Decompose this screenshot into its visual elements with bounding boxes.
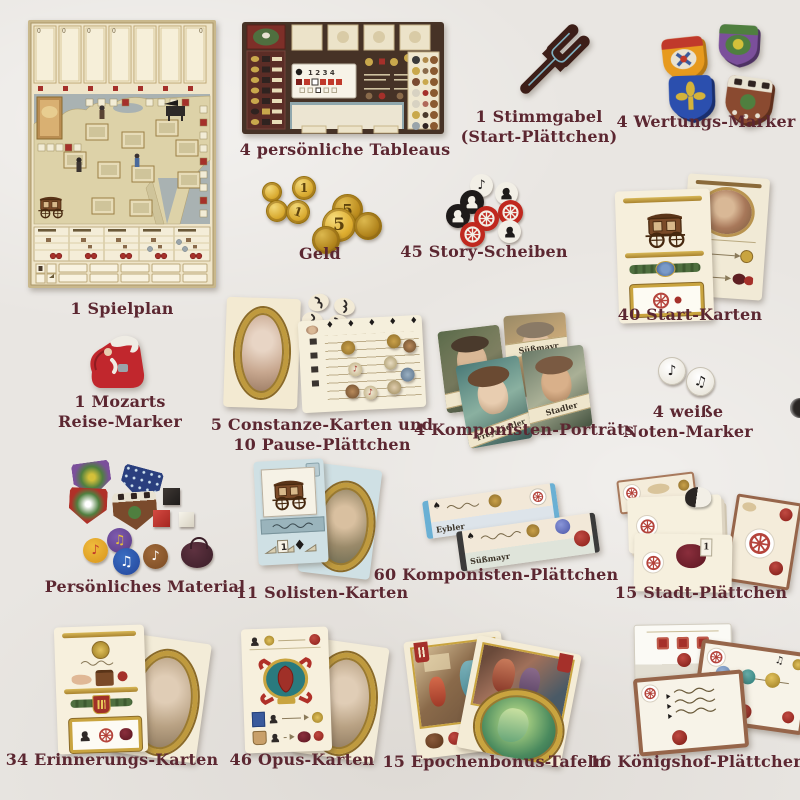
- komponisten-plaettchen-group: ♠ Eybler ♠ Süßmayr: [420, 480, 610, 575]
- svg-text:0: 0: [62, 28, 66, 35]
- komponisten-portraets-group: Eybler Süßmayr Freystädtler Stadler: [436, 310, 596, 420]
- stadt-tile-tall: [724, 493, 800, 590]
- wax-seal-icon: [677, 653, 691, 667]
- solisten-label: 11 Solisten-Karten: [236, 583, 409, 603]
- gold-bar: [64, 687, 138, 695]
- carriage-icon: [639, 205, 690, 249]
- stimmgabel-tuning-fork: [492, 10, 612, 115]
- material-label: Persönliches Material: [45, 577, 246, 597]
- bird-icon: [262, 33, 270, 39]
- tableau-graphic: 1 2 3 4: [242, 22, 444, 134]
- profile-icon: [79, 729, 92, 742]
- note-marker: ♫: [683, 364, 718, 399]
- opus-label: 46 Opus-Karten: [230, 750, 375, 770]
- personal-tableau: 1 2 3 4: [242, 22, 444, 134]
- blue-figure-icon: [135, 154, 140, 167]
- figure-token-icon: [685, 487, 712, 508]
- coin-icon: [526, 523, 541, 538]
- traveler-icon: [99, 105, 104, 119]
- note-disc-yellow: ♪: [83, 538, 108, 563]
- red-gem-icon: [779, 507, 794, 522]
- red-gem-icon: [573, 529, 591, 547]
- tableau-score-card: 1 2 3 4: [292, 64, 356, 98]
- player-shield-red: [68, 487, 108, 525]
- purse-icon: [181, 542, 213, 568]
- erinnerungs-card-front: [54, 624, 148, 754]
- constanze-label: 5 Constanze-Karten und 10 Pause-Plättche…: [211, 415, 433, 456]
- stadt-plaettchen-group: 1: [610, 468, 800, 588]
- geld-label: Geld: [299, 244, 341, 264]
- reisemarker-label: 1 Mozarts Reise-Marker: [58, 392, 182, 433]
- bird-icon: [647, 482, 670, 495]
- epochenbonus-tafel-2: [456, 635, 582, 767]
- slot-zero: 0: [37, 28, 41, 35]
- blue-gem-icon: [554, 518, 571, 535]
- tableaus-label: 4 persönliche Tableaus: [240, 140, 451, 160]
- storyscheiben-label: 45 Story-Scheiben: [400, 242, 567, 262]
- piano-icon: [166, 106, 185, 116]
- coin-1: 1: [283, 197, 313, 227]
- koenigshof-label: 16 Königshof-Plättchen: [589, 752, 800, 772]
- svg-text:1: 1: [281, 543, 288, 553]
- red-cube: [153, 510, 170, 527]
- wax-seal-icon: [671, 729, 687, 745]
- opus-card-front: [241, 627, 332, 754]
- spielplan-label: 1 Spielplan: [70, 299, 173, 319]
- framed-icons-box: [69, 717, 142, 753]
- solisten-card-front: 1: [253, 458, 328, 566]
- dark-red-token-icon: [119, 728, 132, 740]
- coin-icon: [91, 641, 110, 660]
- garland-medallion-icon: [655, 261, 676, 278]
- board-score-table: [34, 227, 210, 283]
- hand-items-icons: [71, 667, 130, 687]
- coin-ornate: [266, 200, 288, 222]
- notenmarker-label: 4 weiße Noten-Marker: [623, 402, 753, 443]
- coin-ornate: [354, 212, 382, 240]
- story-disc-profile: [498, 220, 521, 243]
- constanze-card: [223, 297, 301, 410]
- player-shield-brown: [112, 491, 159, 532]
- board-map: [34, 94, 210, 224]
- carriage-icon: [267, 473, 311, 511]
- coin-1: 1: [292, 176, 316, 200]
- mozart-figure-icon: [82, 330, 150, 394]
- epoch-seal: [413, 641, 429, 663]
- note-marker: ♪: [658, 357, 686, 385]
- stimmgabel-label: 1 Stimmgabel (Start-Plättchen): [461, 107, 618, 148]
- board-card-slots: 0 0 0 0 0: [34, 26, 206, 91]
- opus-row-2: [252, 728, 324, 746]
- koenigshof-group: ♫: [626, 616, 800, 756]
- spielplan-board-graphic: 0 0 0 0 0: [28, 20, 216, 288]
- carousel-next-arrow-icon[interactable]: [790, 398, 800, 418]
- wertungs-marker-group: [652, 18, 797, 118]
- coin-icon: [488, 493, 503, 508]
- tuning-fork-icon: [492, 10, 612, 115]
- name-banner: [260, 516, 325, 534]
- svg-text:0: 0: [199, 28, 203, 35]
- white-cube: [179, 512, 194, 527]
- carriage-frame: [261, 467, 317, 518]
- gold-bar: [623, 196, 702, 204]
- note-disc-brown: ♪: [143, 544, 168, 569]
- svg-text:0: 0: [112, 28, 116, 35]
- tableau-track-numbers: 1 2 3 4: [308, 69, 335, 77]
- stadt-plaettchen-label: 15 Stadt-Plättchen: [615, 583, 787, 603]
- epochenbonus-label: 15 Epochenbonus-Tafeln: [382, 752, 605, 772]
- komponisten-plaettchen-label: 60 Komponisten-Plättchen: [374, 565, 619, 585]
- dark-figure-icon: [76, 157, 81, 172]
- black-cube: [163, 488, 180, 505]
- constanze-portrait: [233, 307, 290, 399]
- wheel-icon: [98, 727, 114, 743]
- note-disc-blue: ♫: [113, 548, 140, 575]
- story-scheiben-group: ♪: [440, 168, 550, 248]
- red-shield-icon: [92, 695, 111, 715]
- tile-name: Süßmayr: [469, 551, 510, 566]
- coin-ornate: [262, 182, 282, 202]
- startkarten-label: 40 Start-Karten: [618, 305, 763, 325]
- portraets-label: 4 Komponisten-Porträts: [414, 420, 634, 440]
- geld-coins: 1 1 5 5: [250, 170, 390, 250]
- erinnerungs-label: 34 Erinnerungs-Karten: [6, 750, 219, 770]
- spielplan-board: 0 0 0 0 0: [28, 20, 216, 288]
- persoenliches-material-group: ♪ ♫ ♫ ♪: [55, 450, 235, 575]
- gold-bar: [62, 631, 136, 639]
- noten-marker-group: ♪ ♫: [652, 355, 732, 401]
- pause-tile: [306, 291, 331, 314]
- start-card-front: [615, 188, 715, 323]
- svg-text:0: 0: [87, 28, 91, 35]
- pause-score-card: ♦♦♦♦♦ ♪ ♪: [298, 315, 427, 413]
- opus-crest-icon: [256, 653, 316, 707]
- opus-top-row: [249, 632, 320, 648]
- wertungsmarker-label: 4 Wertungs-Marker: [616, 112, 795, 132]
- tableau-right-column: [408, 52, 439, 130]
- purple-shield-marker: [715, 21, 766, 73]
- opus-row-1: [252, 709, 324, 727]
- koenigshof-tile-left: [633, 669, 749, 756]
- gold-bar: [625, 251, 704, 259]
- mozart-reise-marker: [82, 330, 150, 394]
